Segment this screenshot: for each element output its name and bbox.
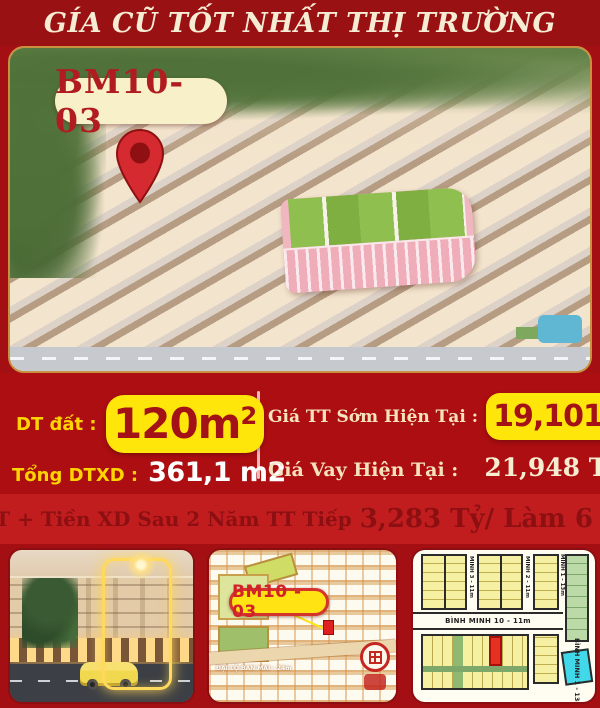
early-price-value: 19,101Tỷ bbox=[493, 402, 600, 432]
early-price-label: Giá TT Sớm Hiện Tại : bbox=[268, 407, 478, 427]
street-label-minh1: MINH 1 - 13m bbox=[559, 554, 565, 596]
street-label-minh3: MINH 3 - 11m bbox=[468, 556, 474, 598]
aerial-render-image: BM10-03 bbox=[8, 46, 592, 373]
plat-map-thumbnail: MINH 3 - 11m MINH 2 - 11m MINH 1 - 13m B… bbox=[413, 550, 595, 702]
pool-area bbox=[538, 315, 582, 343]
lot-block-1 bbox=[421, 554, 467, 610]
construction-area-label: Tổng DTXD : bbox=[12, 465, 138, 486]
land-area-badge: 120m2 bbox=[106, 395, 264, 453]
highlighted-lot-red bbox=[323, 620, 334, 635]
lot-block-4 bbox=[421, 634, 529, 690]
street-label-minh2: MINH 2 - 11m bbox=[524, 556, 530, 598]
lot-code-pill: BM10-03 bbox=[55, 78, 227, 124]
payment-banner-text: KPBT + Tiền XD Sau 2 Năm TT Tiếp bbox=[0, 507, 352, 531]
glow-spark bbox=[126, 550, 156, 580]
stamp-grid-glyph bbox=[369, 651, 382, 664]
loan-price-value: 21,948 Tỷ bbox=[484, 453, 600, 482]
green-lot-column bbox=[565, 554, 589, 642]
street-binh-minh-10-label: BÌNH MINH 10 - 11m bbox=[445, 617, 531, 625]
green-row bbox=[423, 666, 527, 672]
payment-banner-amount: 3,283 Tỷ/ Làm 6 Đợt bbox=[360, 504, 600, 534]
construction-area-value: 361,1 m2 bbox=[148, 457, 286, 488]
info-section: DT đất : 120m2 Tổng DTXD : 361,1 m2 Giá … bbox=[0, 373, 600, 494]
header-bar: GÍA CŨ TỐT NHẤT THỊ TRƯỜNG bbox=[0, 0, 600, 46]
street-binh-minh-10: BÌNH MINH 10 - 11m bbox=[413, 612, 563, 630]
real-estate-poster: GÍA CŨ TỐT NHẤT THỊ TRƯỜNG BM10-03 DT đấ… bbox=[0, 0, 600, 708]
school-building bbox=[280, 187, 477, 294]
green-strip bbox=[453, 636, 463, 688]
lot-block-5 bbox=[533, 634, 559, 684]
site-map-thumbnail: BM10 - 03 ĐẠI LỘ BAN MAI - 24m bbox=[209, 550, 396, 702]
loan-price-label: Giá Vay Hiện Tại : bbox=[268, 459, 458, 481]
shophouse-render-thumbnail bbox=[10, 550, 193, 702]
land-area-label: DT đất : bbox=[16, 414, 97, 435]
lot-block-3 bbox=[533, 554, 559, 610]
site-map-lot-label: BM10 - 03 bbox=[232, 582, 326, 622]
early-price-badge: 19,101Tỷ bbox=[486, 393, 600, 440]
boulevard-street-label: ĐẠI LỘ BAN MAI - 24m bbox=[216, 665, 291, 672]
early-price-row: Giá TT Sớm Hiện Tại : 19,101Tỷ bbox=[268, 393, 600, 440]
poster-title: GÍA CŨ TỐT NHẤT THỊ TRƯỜNG bbox=[44, 8, 556, 39]
lot-block-2 bbox=[477, 554, 523, 610]
map-pin-icon bbox=[114, 128, 166, 206]
land-area-row: DT đất : 120m2 bbox=[16, 395, 264, 453]
window-stamp-icon bbox=[360, 642, 390, 672]
tree bbox=[22, 578, 78, 648]
loan-price-row: Giá Vay Hiện Tại : 21,948 Tỷ bbox=[268, 453, 600, 482]
stamp-tail bbox=[364, 674, 386, 690]
land-area-value: 120m2 bbox=[113, 403, 256, 445]
payment-banner: KPBT + Tiền XD Sau 2 Năm TT Tiếp 3,283 T… bbox=[0, 494, 600, 544]
road-bottom bbox=[10, 347, 590, 371]
highlighted-lot-outline bbox=[489, 636, 502, 666]
street-binh-minh-1-label: BÌNH MINH 1 - 13m bbox=[573, 638, 581, 702]
site-map-lot-pill: BM10 - 03 bbox=[229, 588, 329, 616]
construction-area-row: Tổng DTXD : 361,1 m2 bbox=[12, 457, 286, 488]
square-sup: 2 bbox=[240, 402, 256, 430]
